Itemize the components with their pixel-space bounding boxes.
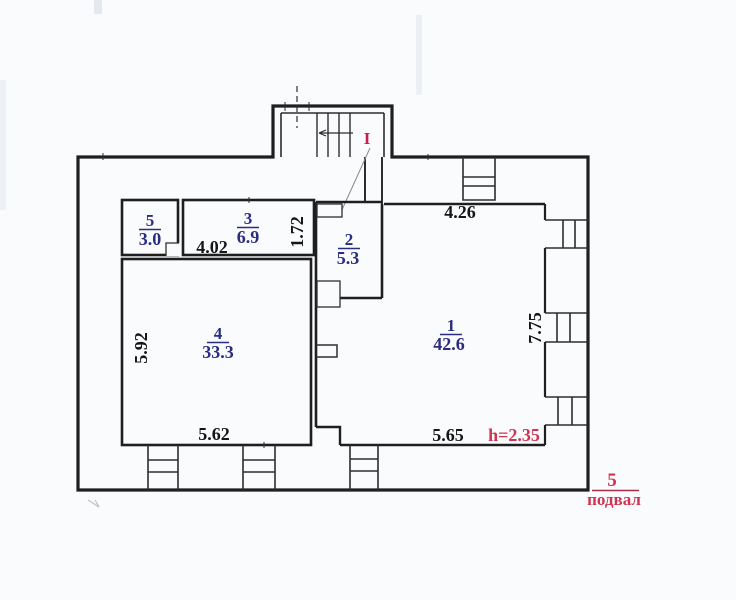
scan-mark (88, 500, 99, 507)
dim-room4-width: 5.62 (198, 424, 230, 444)
room-4-area: 33.3 (202, 342, 234, 362)
dimension-labels: 4.02 1.72 4.26 5.92 5.62 5.65 7.75 (131, 202, 545, 445)
dim-room1-top-width: 4.26 (444, 202, 476, 222)
room-2-label: 2 5.3 (337, 230, 360, 268)
scan-smudge-top (94, 0, 102, 14)
window-right-upper (545, 220, 588, 248)
stair-treads (317, 113, 350, 157)
notch-mask (166, 243, 180, 256)
room-1-area: 42.6 (433, 334, 465, 354)
window-bottom-right (350, 445, 378, 490)
ventilation-shaft (463, 157, 495, 200)
room-3-label: 3 6.9 (237, 209, 260, 247)
room-4-label: 4 33.3 (202, 324, 234, 362)
room-2-bottom-niche (317, 281, 340, 307)
room-3-number: 3 (244, 209, 253, 228)
dim-room4-height: 5.92 (131, 332, 151, 364)
red-annotations: I h=2.35 5 подвал (364, 129, 642, 509)
window-bottom-center (243, 445, 275, 490)
floor-name-label: подвал (587, 490, 641, 509)
window-right-middle (545, 313, 588, 342)
room-1-walls (340, 204, 545, 445)
room-5-area: 3.0 (139, 229, 162, 249)
room-1-label: 1 42.6 (433, 316, 465, 354)
stair-passage-walls (365, 157, 382, 204)
room-3-area: 6.9 (237, 227, 260, 247)
corridor-bottom-step (316, 427, 340, 445)
room-2-number: 2 (345, 230, 354, 249)
room-5-door-notch (166, 243, 180, 256)
wall-tick-marks (103, 153, 428, 448)
corridor-pilaster (316, 345, 337, 357)
dim-room3-depth: 1.72 (287, 216, 307, 248)
floor-number-label: 5 (607, 470, 617, 491)
window-bottom-left (148, 445, 178, 490)
floor-plan-drawing: 5 3.0 3 6.9 2 5.3 4 33.3 1 42.6 4.02 1.7… (0, 0, 736, 600)
dim-room3-width: 4.02 (196, 237, 228, 257)
dim-room1-bottom-width: 5.65 (432, 425, 464, 445)
room-5-number: 5 (146, 211, 155, 230)
room-5-label: 5 3.0 (139, 211, 162, 249)
scan-smudge-ghost (416, 15, 422, 95)
scan-smudge-left (0, 80, 6, 210)
dim-room1-height: 7.75 (525, 312, 545, 344)
room-1-number: 1 (447, 316, 456, 335)
stair-direction-line (319, 130, 353, 136)
ceiling-height-label: h=2.35 (488, 425, 540, 445)
stair-mark-label: I (364, 129, 371, 148)
scanned-floor-plan-page: 5 3.0 3 6.9 2 5.3 4 33.3 1 42.6 4.02 1.7… (0, 0, 736, 600)
room-2-top-niche (317, 204, 342, 217)
room-2-area: 5.3 (337, 248, 360, 268)
room-4-number: 4 (214, 324, 223, 343)
bottom-wall-windows (148, 445, 378, 490)
right-wall-windows (545, 220, 588, 425)
window-right-lower (545, 397, 588, 425)
